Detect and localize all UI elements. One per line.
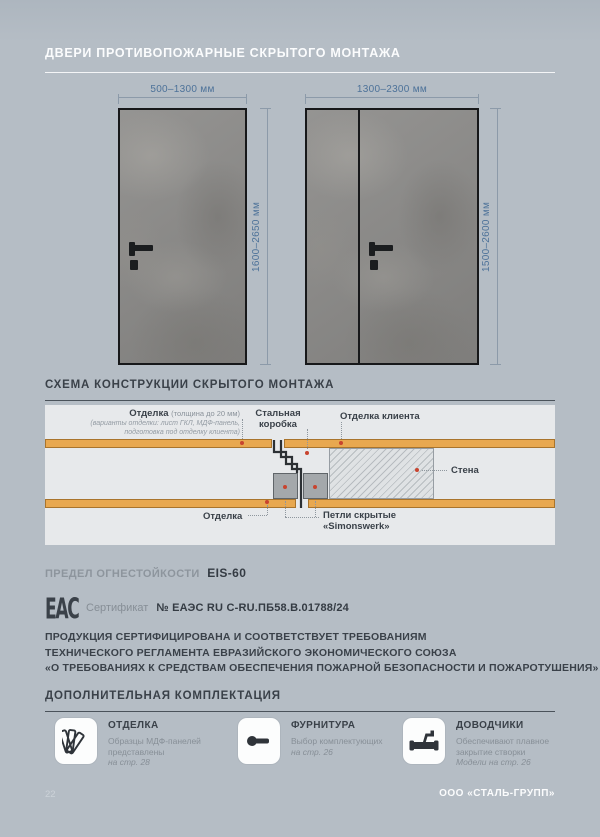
hinges-label: Петли скрытые «Simonswerk» bbox=[323, 510, 396, 532]
card-line-italic: на стр. 26 bbox=[291, 747, 383, 758]
double-door-width-dimension-line bbox=[305, 97, 479, 98]
single-door-panel bbox=[118, 108, 247, 365]
single-door-height-label: 1600–2650 мм bbox=[250, 108, 263, 365]
leader-line bbox=[315, 501, 316, 517]
door-handle-lever bbox=[134, 245, 153, 251]
card-line-italic: Модели на стр. 26 bbox=[456, 757, 549, 768]
door-lock-cylinder bbox=[130, 260, 138, 270]
certificate-label: Сертификат bbox=[86, 602, 148, 614]
card-text: ДОВОДЧИКИ Обеспечивают плавное закрытие … bbox=[456, 718, 549, 768]
finish-top-label: Отделка (толщина до 20 мм) bbox=[85, 408, 240, 419]
finish-note-text: (толщина до 20 мм) bbox=[171, 409, 240, 418]
card-title: ФУРНИТУРА bbox=[291, 720, 383, 731]
compliance-line1: ПРОДУКЦИЯ СЕРТИФИЦИРОВАНА И СООТВЕТСТВУЕ… bbox=[45, 630, 560, 646]
fire-rating-value: EIS-60 bbox=[207, 566, 246, 580]
leader-line bbox=[285, 501, 286, 517]
card-line: Выбор комплектующих bbox=[291, 736, 383, 747]
fire-rating-label: ПРЕДЕЛ ОГНЕСТОЙКОСТИ bbox=[45, 568, 200, 580]
single-door-width-dimension-line bbox=[118, 97, 247, 98]
leader-line bbox=[307, 429, 308, 449]
double-door-height-label: 1500–2600 мм bbox=[480, 108, 493, 365]
leader-line bbox=[285, 517, 319, 518]
leader-line bbox=[267, 505, 268, 515]
hinges-label-line1: Петли скрытые bbox=[323, 510, 396, 521]
leader-dot bbox=[283, 485, 287, 489]
card-line-italic: на стр. 28 bbox=[108, 757, 201, 768]
hinges-label-line2: «Simonswerk» bbox=[323, 521, 396, 532]
extras-card-hardware: ФУРНИТУРА Выбор комплектующих на стр. 26 bbox=[238, 718, 383, 764]
fire-rating-row: ПРЕДЕЛ ОГНЕСТОЙКОСТИ EIS-60 bbox=[45, 566, 246, 580]
page-header: ДВЕРИ ПРОТИВОПОЖАРНЫЕ СКРЫТОГО МОНТАЖА bbox=[45, 44, 555, 73]
certificate-number: № ЕАЭС RU C-RU.ПБ58.В.01788/24 bbox=[156, 602, 349, 614]
card-icon-tile bbox=[238, 718, 280, 764]
page-title: ДВЕРИ ПРОТИВОПОЖАРНЫЕ СКРЫТОГО МОНТАЖА bbox=[45, 46, 401, 60]
card-title: ДОВОДЧИКИ bbox=[456, 720, 549, 731]
leader-dot bbox=[240, 441, 244, 445]
certificate-row: Сертификат № ЕАЭС RU C-RU.ПБ58.В.01788/2… bbox=[86, 602, 349, 614]
panels-fan-icon bbox=[62, 727, 90, 755]
leader-dot bbox=[305, 451, 309, 455]
mounting-schema-diagram: Отделка (толщина до 20 мм) (варианты отд… bbox=[45, 405, 555, 545]
door-handle-lever bbox=[374, 245, 393, 251]
card-line: Обеспечивают плавное bbox=[456, 736, 549, 747]
leader-line bbox=[422, 470, 447, 471]
compliance-line3: «О ТРЕБОВАНИЯХ К СРЕДСТВАМ ОБЕСПЕЧЕНИЯ П… bbox=[45, 661, 560, 677]
schema-section-title: СХЕМА КОНСТРУКЦИИ СКРЫТОГО МОНТАЖА bbox=[45, 379, 555, 401]
wall-label: Стена bbox=[451, 465, 479, 476]
extras-section-title: ДОПОЛНИТЕЛЬНАЯ КОМПЛЕКТАЦИЯ bbox=[45, 690, 555, 712]
leader-dot bbox=[313, 485, 317, 489]
compliance-text: ПРОДУКЦИЯ СЕРТИФИЦИРОВАНА И СООТВЕТСТВУЕ… bbox=[45, 630, 560, 677]
door-lock-cylinder bbox=[370, 260, 378, 270]
steel-frame-label-line1: Стальная bbox=[247, 408, 309, 419]
double-door-panel bbox=[305, 108, 479, 365]
footer-company: ООО «СТАЛЬ-ГРУПП» bbox=[439, 788, 555, 799]
card-text: ОТДЕЛКА Образцы МДФ-панелей представлены… bbox=[108, 718, 201, 768]
extras-card-closers: ДОВОДЧИКИ Обеспечивают плавное закрытие … bbox=[403, 718, 549, 768]
card-icon-tile bbox=[55, 718, 97, 764]
leader-line bbox=[248, 515, 267, 516]
compliance-line2: ТЕХНИЧЕСКОГО РЕГЛАМЕНТА ЕВРАЗИЙСКОГО ЭКО… bbox=[45, 646, 560, 662]
catalog-page: ДВЕРИ ПРОТИВОПОЖАРНЫЕ СКРЫТОГО МОНТАЖА 5… bbox=[0, 0, 600, 837]
card-line: закрытие створки bbox=[456, 747, 549, 758]
double-door-height-dimension-line bbox=[497, 108, 498, 365]
finish-variants-note-line2: подготовка под отделку клиента) bbox=[65, 429, 240, 438]
double-door-width-label: 1300–2300 мм bbox=[305, 84, 479, 95]
finish-label-text: Отделка bbox=[129, 408, 168, 419]
steel-frame-label-line2: коробка bbox=[247, 419, 309, 430]
leader-dot bbox=[265, 500, 269, 504]
finish-bottom-label: Отделка bbox=[203, 511, 242, 522]
door-closer-icon bbox=[409, 727, 439, 755]
single-door-height-dimension-line bbox=[267, 108, 268, 365]
door-leaf-divider bbox=[358, 110, 360, 363]
extras-card-finish: ОТДЕЛКА Образцы МДФ-панелей представлены… bbox=[55, 718, 201, 768]
card-title: ОТДЕЛКА bbox=[108, 720, 201, 731]
finish-variants-note-line1: (варианты отделки: лист ГКЛ, МДФ-панель, bbox=[65, 420, 240, 429]
leader-line bbox=[242, 419, 243, 439]
page-number: 22 bbox=[45, 789, 56, 800]
single-door-width-label: 500–1300 мм bbox=[118, 84, 247, 95]
leader-dot bbox=[415, 468, 419, 472]
card-text: ФУРНИТУРА Выбор комплектующих на стр. 26 bbox=[291, 718, 383, 764]
card-line: представлены bbox=[108, 747, 201, 758]
steel-frame-label: Стальная коробка bbox=[247, 408, 309, 430]
door-handle-icon bbox=[245, 727, 273, 755]
leader-line bbox=[341, 422, 342, 439]
leader-dot bbox=[339, 441, 343, 445]
client-finish-label: Отделка клиента bbox=[340, 411, 420, 422]
card-line: Образцы МДФ-панелей bbox=[108, 736, 201, 747]
card-icon-tile bbox=[403, 718, 445, 764]
